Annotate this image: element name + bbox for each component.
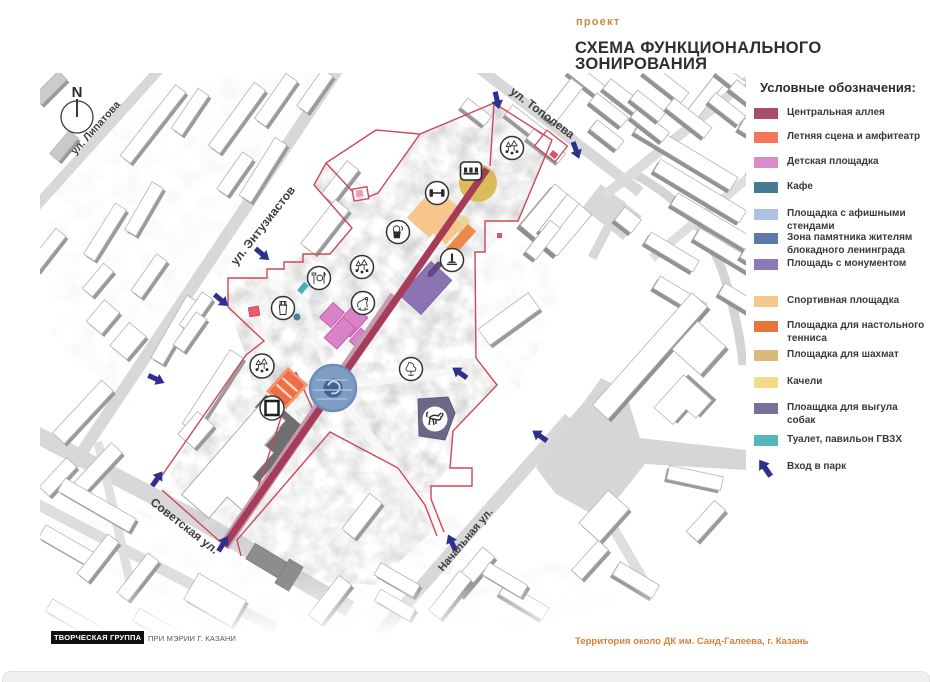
svg-text:N: N — [72, 84, 83, 101]
